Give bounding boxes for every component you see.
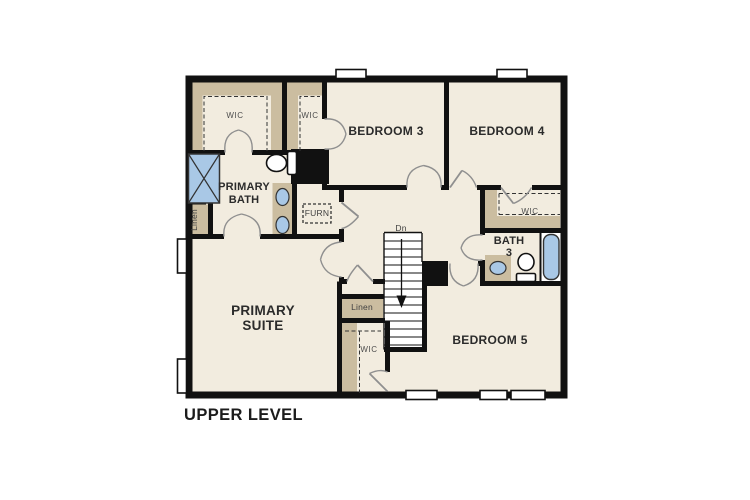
bedroom3-label: BEDROOM 3 bbox=[348, 124, 423, 138]
wic-bedroom3-label: WIC bbox=[301, 111, 318, 120]
linen-hall-label: Linen bbox=[351, 302, 373, 312]
bath3-label-1: BATH bbox=[494, 235, 525, 247]
primary-bath-label-1: PRIMARY bbox=[218, 181, 270, 193]
bath3-toilet-tank bbox=[517, 274, 536, 282]
bathtub bbox=[544, 235, 560, 280]
bath3-toilet bbox=[518, 254, 534, 271]
wic-suite-label: WIC bbox=[360, 345, 377, 354]
primary-suite-label-2: SUITE bbox=[242, 318, 283, 333]
bedroom4-label: BEDROOM 4 bbox=[469, 124, 544, 138]
bath3-label-2: 3 bbox=[506, 247, 512, 259]
stairs-down-label: Dn bbox=[395, 223, 406, 233]
bath3-sink bbox=[490, 262, 506, 275]
bedroom5-label: BEDROOM 5 bbox=[452, 333, 527, 347]
wic-primary-label: WIC bbox=[226, 111, 243, 120]
primary-bath-label-2: BATH bbox=[229, 194, 260, 206]
primary-toilet-tank bbox=[288, 152, 297, 175]
vanity-sink-2 bbox=[276, 217, 289, 234]
primary-toilet bbox=[267, 155, 287, 172]
furnace-label: FURN bbox=[305, 208, 329, 218]
page-title: UPPER LEVEL bbox=[184, 406, 303, 424]
vanity-sink-1 bbox=[276, 189, 289, 206]
primary-suite-label-1: PRIMARY bbox=[231, 303, 295, 318]
linen-bath-label: Linen bbox=[189, 209, 199, 231]
floor-plan-page: WIC WIC BEDROOM 3 BEDROOM 4 PRIMARY BATH… bbox=[0, 0, 750, 500]
wic-bedroom4-label: WIC bbox=[521, 207, 538, 216]
floor-plan-drawing: WIC WIC BEDROOM 3 BEDROOM 4 PRIMARY BATH… bbox=[0, 0, 750, 500]
